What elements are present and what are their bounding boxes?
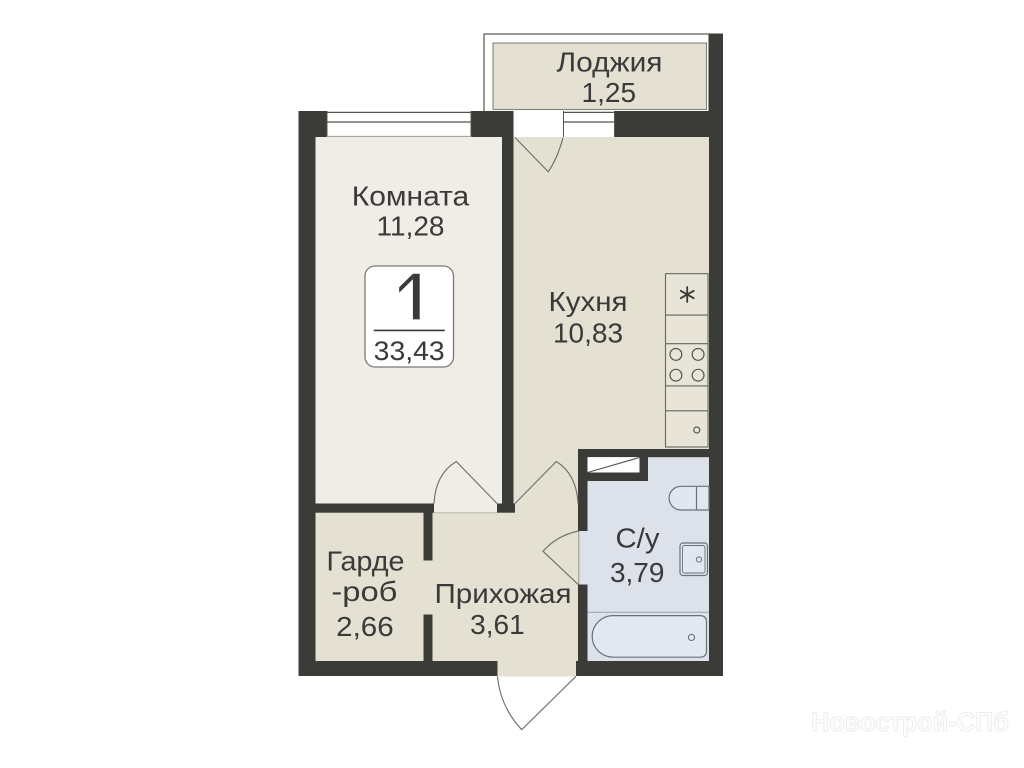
svg-text:33,43: 33,43 — [374, 336, 445, 366]
svg-text:Прихожая: Прихожая — [435, 578, 572, 609]
svg-text:1,25: 1,25 — [582, 77, 637, 108]
svg-text:Гарде: Гарде — [327, 546, 405, 577]
svg-text:Лоджия: Лоджия — [557, 47, 663, 78]
svg-text:Комната: Комната — [352, 181, 470, 212]
svg-text:С/у: С/у — [616, 523, 660, 554]
svg-text:3,61: 3,61 — [470, 609, 525, 640]
svg-text:-роб: -роб — [331, 576, 397, 607]
svg-text:2,66: 2,66 — [336, 611, 394, 642]
svg-text:11,28: 11,28 — [377, 211, 445, 242]
svg-text:3,79: 3,79 — [610, 557, 665, 588]
svg-text:10,83: 10,83 — [553, 318, 623, 349]
svg-text:Кухня: Кухня — [549, 286, 628, 317]
svg-text:Новострой-СПб: Новострой-СПб — [811, 707, 1009, 737]
